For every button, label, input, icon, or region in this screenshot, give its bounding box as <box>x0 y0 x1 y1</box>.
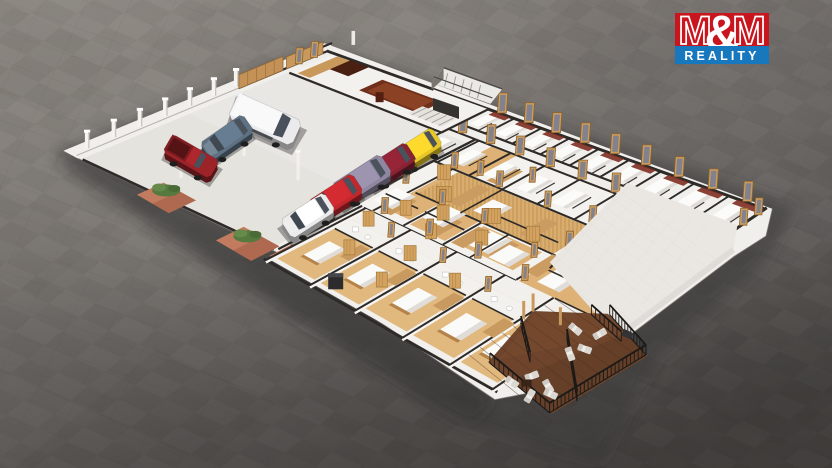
svg-text:REALITY: REALITY <box>684 49 759 63</box>
